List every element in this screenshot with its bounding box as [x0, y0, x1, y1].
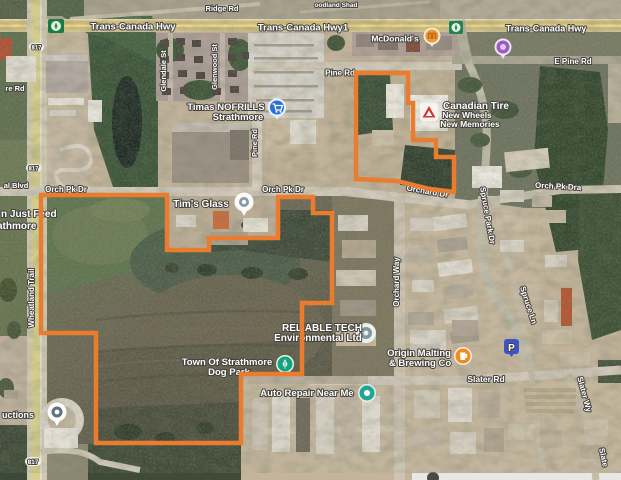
svg-text:P: P [508, 343, 515, 354]
svg-text:Pine Rd: Pine Rd [325, 69, 355, 78]
svg-text:McDonald's: McDonald's [371, 34, 419, 44]
svg-text:817: 817 [31, 46, 42, 52]
svg-text:oodland Shad: oodland Shad [315, 2, 358, 9]
svg-text:817: 817 [28, 167, 39, 173]
svg-text:uctions: uctions [2, 410, 34, 420]
svg-text:Pine Rd: Pine Rd [250, 129, 259, 157]
svg-text:E Pine Rd: E Pine Rd [554, 57, 591, 66]
svg-text:Slater Rd: Slater Rd [467, 374, 504, 384]
svg-text:Trans-Canada Hwy: Trans-Canada Hwy [506, 24, 587, 34]
svg-text:Strathmore: Strathmore [213, 112, 264, 123]
svg-text:Environmental Ltd: Environmental Ltd [274, 333, 362, 344]
svg-text:Glenwood St: Glenwood St [210, 44, 219, 90]
svg-text:& Brewing Co: & Brewing Co [389, 358, 451, 369]
svg-text:athmore: athmore [0, 221, 37, 232]
svg-text:n Just Feed: n Just Feed [1, 209, 57, 220]
svg-text:Auto Repair Near Me: Auto Repair Near Me [260, 388, 353, 399]
svg-text:al Blvd: al Blvd [4, 181, 29, 190]
svg-text:Orchard Way: Orchard Way [392, 257, 401, 307]
svg-text:Orch Pk Dr: Orch Pk Dr [262, 185, 304, 194]
svg-text:Tim's Glass: Tim's Glass [173, 199, 229, 210]
svg-text:817: 817 [28, 459, 39, 466]
svg-text:re Rd: re Rd [5, 84, 25, 93]
svg-text:Ridge Rd: Ridge Rd [206, 4, 239, 13]
svg-text:Orch Pk Dr: Orch Pk Dr [45, 185, 87, 194]
svg-text:Wheatland Trail: Wheatland Trail [27, 268, 36, 327]
svg-text:Trans-Canada Hwy: Trans-Canada Hwy [91, 22, 177, 33]
svg-text:Trans-Canada Hwy1: Trans-Canada Hwy1 [258, 23, 349, 34]
svg-text:Glendale St: Glendale St [159, 50, 168, 92]
svg-text:New Memories: New Memories [440, 119, 500, 129]
